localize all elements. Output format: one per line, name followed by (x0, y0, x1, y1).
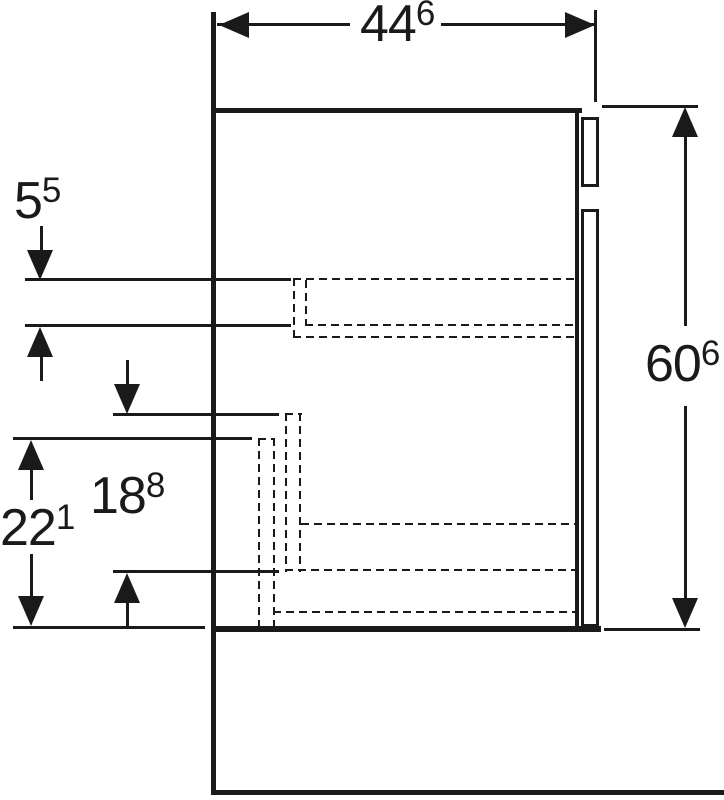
cabinet-right-panel-line (575, 108, 579, 627)
upper-drawer-hidden-top-line (293, 278, 577, 280)
dim-height-bottom-reference-line (604, 628, 700, 631)
dim-lower-drawer-label: 221 (0, 502, 75, 554)
middle-drawer-hidden-front-outer-line (285, 413, 287, 572)
dim-upper-drawer-arrow-down (27, 250, 53, 280)
dim-lower-drawer-arrow-down (18, 596, 44, 626)
dim-middle-drawer-value: 18 (90, 467, 146, 525)
lower-drawer-hidden-bottom-line (273, 611, 577, 613)
upper-drawer-hidden-front-outer-line (293, 278, 295, 339)
dim-lower-drawer-arrow-up (18, 440, 44, 470)
wall-line (211, 12, 216, 795)
dim-upper-drawer-bottom-reference-line (25, 324, 291, 327)
dim-upper-drawer-superscript: 5 (42, 171, 61, 210)
dim-upper-drawer-up-arrow-shaft (40, 355, 43, 381)
cabinet-bottom-edge (214, 626, 601, 632)
upper-drawer-hidden-outer-bottom-line (293, 336, 577, 338)
dim-height-arrow-down (672, 598, 698, 628)
dim-height-line-upper-segment (684, 136, 687, 326)
dim-middle-drawer-up-arrow-shaft (126, 601, 129, 627)
upper-drawer-hidden-inner-bottom-line (305, 324, 577, 326)
dim-middle-drawer-superscript: 8 (146, 466, 165, 505)
dim-lower-drawer-top-reference-line (13, 437, 252, 440)
dim-upper-drawer-down-arrow-shaft (40, 226, 43, 252)
dim-width-arrow-left (219, 12, 249, 38)
lower-drawer-hidden-front-outer-line (258, 438, 260, 628)
middle-drawer-hidden-front-top-line (285, 413, 302, 415)
dim-lower-drawer-superscript: 1 (56, 498, 75, 537)
middle-drawer-hidden-front-inner-line (299, 413, 301, 572)
dim-height-value: 60 (645, 335, 701, 393)
middle-drawer-hidden-outer-bottom-line (285, 569, 577, 571)
dim-middle-drawer-arrow-up (114, 573, 140, 603)
dim-width-value: 44 (360, 0, 416, 53)
lower-drawer-hidden-front-top-line (258, 438, 275, 440)
dim-upper-drawer-label: 55 (14, 175, 61, 227)
cabinet-top-edge (214, 108, 582, 113)
dim-upper-drawer-value: 5 (14, 172, 42, 230)
dim-width-label: 446 (360, 0, 435, 50)
dim-middle-drawer-down-arrow-shaft (126, 360, 129, 386)
dim-lower-drawer-up-arrow-shaft (30, 468, 33, 500)
dim-width-arrow-right (565, 12, 595, 38)
upper-drawer-front-panel (581, 117, 599, 187)
dim-width-extension-line (594, 10, 597, 102)
dim-height-superscript: 6 (701, 334, 720, 373)
lower-drawer-hidden-front-inner-line (273, 438, 275, 628)
floor-line (211, 790, 724, 795)
lower-drawer-front-panel (581, 209, 599, 627)
dim-upper-drawer-top-reference-line (25, 278, 291, 281)
dim-middle-drawer-arrow-down (114, 384, 140, 414)
dim-lower-drawer-down-arrow-shaft (30, 554, 33, 598)
dim-middle-drawer-label: 188 (90, 470, 165, 522)
dim-lower-drawer-value: 22 (0, 499, 56, 557)
upper-drawer-hidden-front-inner-line (305, 280, 307, 326)
dim-lower-drawer-bottom-reference-line (13, 626, 205, 629)
middle-drawer-hidden-inner-bottom-line (301, 523, 577, 525)
dim-height-arrow-up (672, 107, 698, 137)
cabinet-side-view-diagram: 446 606 55 188 221 (0, 0, 724, 800)
dim-upper-drawer-arrow-up (27, 327, 53, 357)
dim-height-line-lower-segment (684, 406, 687, 599)
dim-width-superscript: 6 (416, 0, 435, 33)
dim-middle-drawer-top-reference-line (113, 413, 279, 416)
dim-height-label: 606 (645, 338, 720, 390)
